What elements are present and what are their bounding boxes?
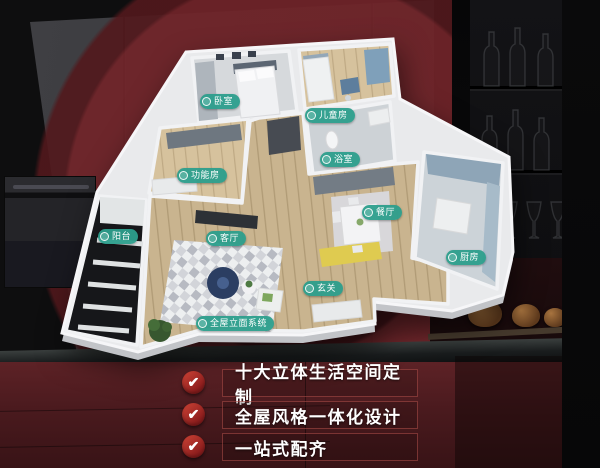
room-label-kitchen: 厨房 [446,250,486,265]
tag-dot-icon [202,97,211,106]
room-label-function-room: 功能房 [177,168,227,183]
tag-dot-icon [208,234,217,243]
checklist-box: 一站式配齐 [222,433,418,461]
entry-door [267,116,301,155]
tag-dot-icon [305,284,314,293]
tag-dot-icon [364,208,373,217]
room-label-living-room: 客厅 [206,231,246,246]
check-icon: ✔ [182,371,205,394]
tag-dot-icon [100,232,109,241]
checklist-box: 全屋风格一体化设计 [222,401,418,429]
room-label-bedroom: 卧室 [200,94,240,109]
room-label-bathroom: 浴室 [320,152,360,167]
check-icon: ✔ [182,435,205,458]
room-label-children-room: 儿童房 [305,108,355,123]
room-label-dining-room: 餐厅 [362,205,402,220]
tag-dot-icon [448,253,457,262]
room-label-entrance: 玄关 [303,281,343,296]
check-icon: ✔ [182,403,205,426]
scene: 卧室 儿童房 功能房 浴室 阳台 客厅 餐厅 厨房 玄关 全屋立面系统 ✔ 十大… [0,0,600,468]
checklist-box: 十大立体生活空间定制 [222,369,418,397]
checklist-text: 全屋风格一体化设计 [235,403,402,428]
tag-dot-icon [179,171,188,180]
room-label-balcony: 阳台 [98,229,138,244]
room-label-elevation-system: 全屋立面系统 [196,316,274,331]
tag-dot-icon [198,319,207,328]
tag-dot-icon [307,111,316,120]
tag-dot-icon [322,155,331,164]
checklist-text: 一站式配齐 [235,435,328,460]
